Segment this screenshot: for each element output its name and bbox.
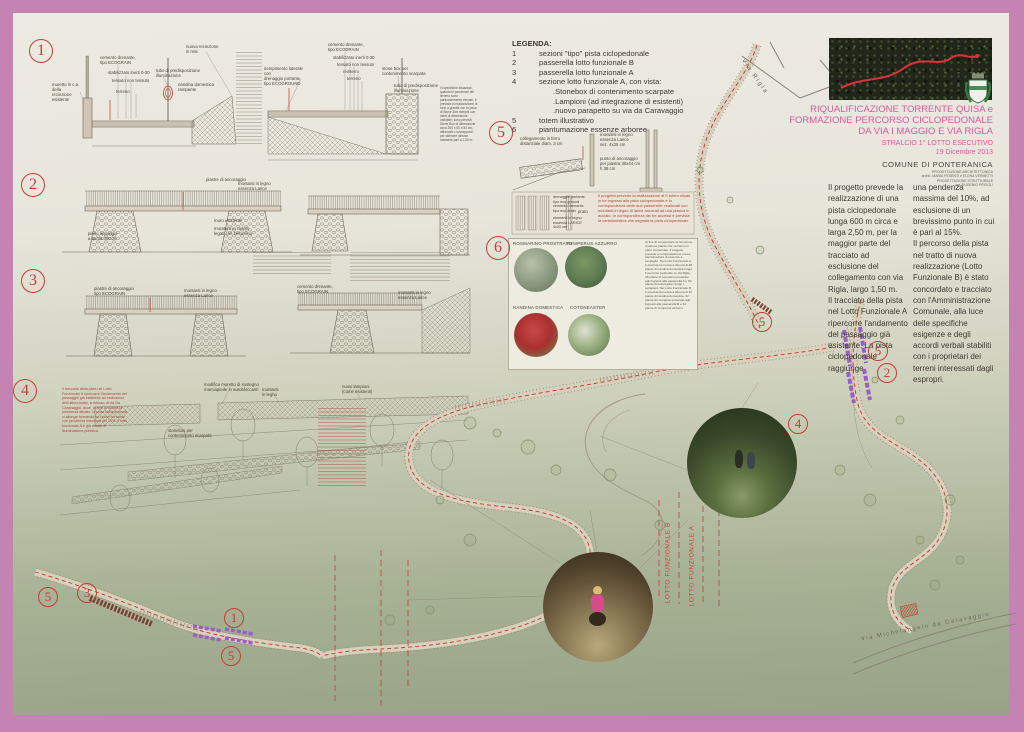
intro-paragraph-2: una pendenza massima del 10%, ad esclusi… — [913, 182, 997, 385]
legend-item: 4sezione lotto funzionale A, con vista: — [512, 77, 812, 87]
s1-label: terreno — [347, 76, 361, 81]
plant-photo-nandina — [514, 313, 558, 357]
s4-note: Il tracciato della pista nel Lotto Funzi… — [62, 387, 128, 479]
s4-micro-text — [318, 408, 366, 488]
section-number-3: 3 — [21, 269, 45, 293]
s3-label: montanti in legno essenza Larice — [184, 288, 217, 298]
s1-label: tubo di predisposizione illuminazione — [156, 68, 200, 78]
project-subtitle: STRALCIO 1° LOTTO ESECUTIVO — [770, 139, 993, 148]
plant-photo-rosmarino — [514, 248, 558, 292]
s4-label: nuovi lampioni (come esistenti) — [342, 384, 372, 394]
bike-wheels — [589, 612, 606, 626]
plant-note: Al fine di compensare la rimozione di al… — [645, 241, 693, 365]
s1-label: tessuto non tessuto — [112, 78, 149, 83]
plant-name: YUNIPERUS AZZURRO — [566, 241, 617, 246]
intro-paragraph-1: Il progetto prevede la realizzazione di … — [828, 182, 908, 374]
s1-label: nandina domestica rampante — [178, 82, 214, 92]
map-marker: 5 — [868, 341, 888, 361]
s1-label: stabilizzato inerti 0-30 — [108, 70, 150, 75]
plant-name: ROSMARINO PROSTRATO — [513, 241, 572, 246]
legend-item: 5totem illustrativo — [512, 116, 812, 126]
cyclist-body — [591, 594, 604, 612]
map-marker: 3 — [77, 583, 97, 603]
legend-subitem: .nuovo parapetto su via da Caravaggio — [512, 106, 812, 116]
project-title-line3: DA VIA I MAGGIO E VIA RIGLA — [770, 126, 993, 137]
map-marker: 5 — [752, 312, 772, 332]
s1-label: muretto in c.a. della recinzione esisten… — [52, 82, 86, 103]
s1-label: tubo di predisposizione illuminazione — [394, 83, 438, 93]
s4-label: stonebox per contenimento scarpata — [168, 428, 211, 438]
s1-label: cemento drenante, tipo ECODRAIN — [328, 42, 364, 52]
map-marker: 4 — [788, 414, 808, 434]
map-marker: 5 — [38, 587, 58, 607]
lot-label-a: LOTTO FUNZIONALE A — [689, 497, 696, 607]
s4-label: modifica muretto di sostegno marciapiede… — [204, 382, 259, 392]
s5-label: prato — [578, 209, 588, 214]
section-number-6: 6 — [486, 236, 510, 260]
legend-item: 3passerella lotto funzionale A — [512, 68, 812, 78]
map-marker: 1 — [224, 608, 244, 628]
legend: LEGENDA: 1sezioni "tipo" pista ciclopedo… — [512, 39, 812, 135]
s3-label: piastre di ancoraggio tipo ECOGRAIN — [94, 286, 134, 296]
map-marker: 5 — [221, 646, 241, 666]
s5-label: elementi in legno essenza LARICE 4x20 cm — [553, 216, 582, 230]
plant-name: NANDINA DOMESTICA — [513, 305, 563, 310]
s5-label: collegamento in ferro distanziale diam. … — [520, 136, 563, 146]
path-walkers-photo — [687, 408, 797, 518]
s3-micro-text — [350, 252, 450, 282]
section-number-2: 2 — [21, 173, 45, 197]
project-title-line2: FORMAZIONE PERCORSO CICLOPEDONALE — [770, 115, 993, 126]
s1-micro-text — [236, 52, 262, 144]
section-number-4: 4 — [13, 379, 37, 403]
legend-subitem: .Lampioni (ad integrazione di esistenti) — [512, 97, 812, 107]
legend-item: 6piantumazione essenze arboree — [512, 125, 812, 135]
s3-label: montanti in legno essenza Larice — [398, 290, 431, 300]
s2-label: muro esistente — [214, 218, 242, 223]
s2-label: muratura in ciclopi legati con betoncino — [214, 226, 252, 236]
walker-figure — [735, 450, 743, 468]
s5-label: montanti in legno essenza Larice sez. 4x… — [600, 132, 633, 147]
s1-label: stone box per contenimento scarpata — [382, 66, 425, 76]
legend-title: LEGENDA: — [512, 39, 812, 49]
plant-photo-yuniperus — [565, 246, 607, 288]
walker-figure — [747, 452, 755, 469]
project-date: 19 Dicembre 2013 — [770, 148, 993, 157]
s4-label: montanti in legno — [262, 387, 278, 397]
s1-label: stabilizzato inerti 0-30 — [333, 55, 375, 60]
municipality-name: COMUNE DI PONTERANICA — [770, 160, 993, 169]
map-marker: 2 — [877, 363, 897, 383]
s2-label: piano appoggio a quota 300.26 — [88, 231, 117, 241]
section-number-5: 5 — [489, 121, 513, 145]
s1-label: nuova recinzione in rete — [186, 44, 219, 54]
section-number-1: 1 — [29, 39, 53, 63]
s3-label: cemento drenante, tipo ECOGRAIN — [297, 284, 333, 294]
s1-note: In specifiche situazioni, quando le pend… — [440, 86, 478, 158]
s1-label: reinterro — [343, 69, 359, 74]
plant-name: COTONEASTER — [570, 305, 606, 310]
plant-photo-cotoneaster — [568, 314, 610, 356]
drawing-board: 1 2 3 4 5 6 LEGENDA: 1sezioni "tipo" pis… — [0, 0, 1024, 732]
s1-label: tessuto non tessuto — [337, 62, 374, 67]
s1-label: riempimento laterale con drenaggio porta… — [264, 66, 308, 87]
cyclist-photo — [543, 552, 653, 662]
legend-item: 1sezioni "tipo" pista ciclopedonale — [512, 49, 812, 59]
legend-item: 2passerella lotto funzionale B — [512, 58, 812, 68]
municipal-crest-icon — [963, 72, 993, 106]
s2-label: montanti in legno essenza Larice — [238, 181, 271, 191]
s5-label: punto di ancoraggio per piastra 30x44 cm… — [600, 156, 640, 171]
s1-label: cemento drenante, tipo ECOGRAIN — [100, 55, 136, 65]
s2-micro-text — [253, 252, 331, 276]
lot-label-b: LOTTO FUNZIONALE B — [665, 494, 672, 604]
s1-label: terreno — [116, 89, 130, 94]
s5-note: Il progetto prevede la realizzazione di … — [598, 193, 692, 233]
project-title-line1: RIQUALIFICAZIONE TORRENTE QUISA e — [770, 104, 993, 115]
